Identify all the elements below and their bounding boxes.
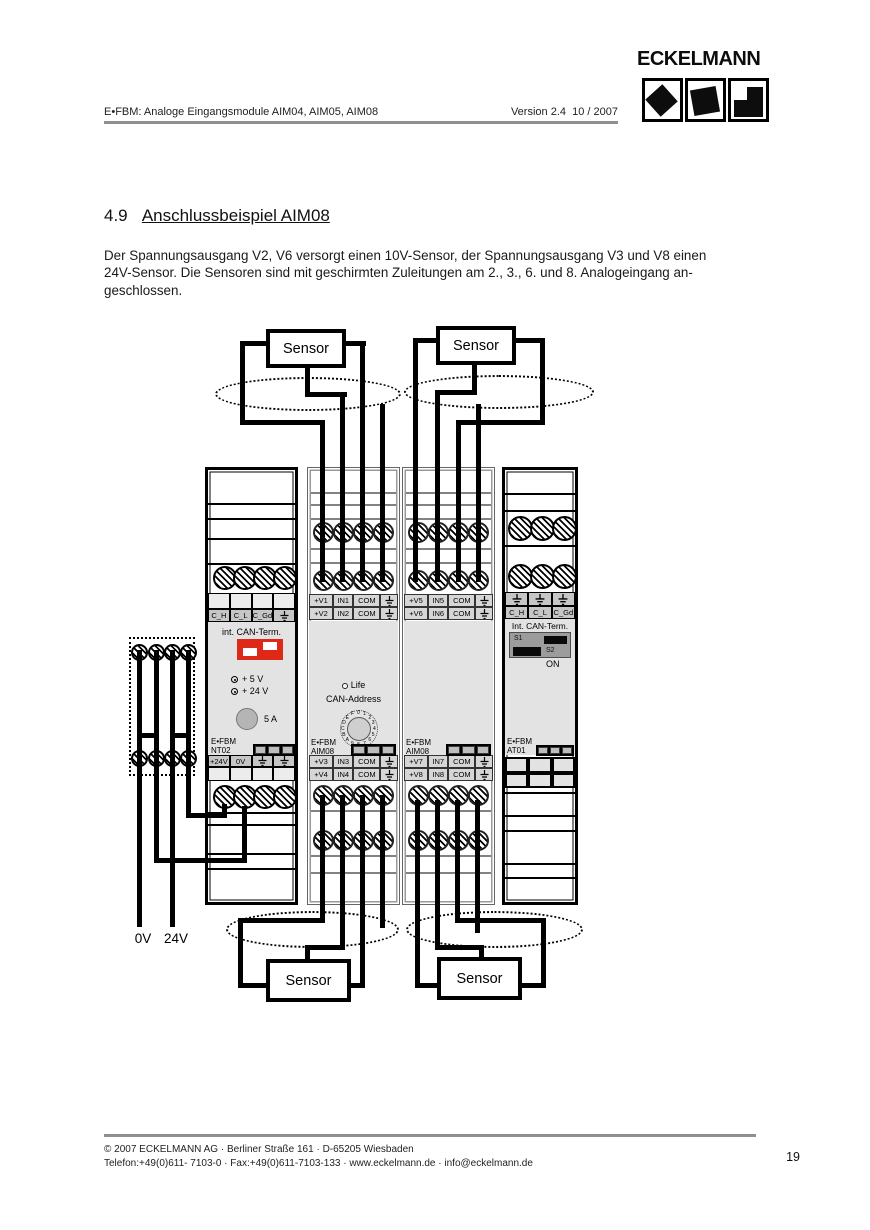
footer-rule (104, 1134, 756, 1137)
divider (208, 824, 295, 826)
brand-label: E•FBM (406, 738, 431, 747)
wire-bridge (170, 733, 191, 738)
terminal-label: COM (448, 768, 475, 781)
s1-label: S1 (514, 635, 523, 642)
fuse-label: 5 A (264, 714, 277, 724)
wire (435, 800, 440, 950)
terminal-grid (505, 757, 575, 788)
dial-digit: B (342, 732, 345, 738)
life-led-icon (342, 683, 348, 689)
divider (505, 830, 575, 832)
earth-icon (280, 611, 289, 621)
earth-icon (385, 596, 394, 606)
screw-terminal (552, 564, 577, 589)
terminal-label-earth (475, 755, 493, 768)
can-address-label: CAN-Address (309, 694, 398, 704)
wire (137, 650, 142, 762)
terminal-label: +V5 (404, 594, 428, 607)
connector-tabs (536, 745, 574, 756)
screw-terminal (552, 516, 577, 541)
wire (240, 420, 325, 425)
wire (154, 650, 159, 762)
terminal-label-row: +V8 IN8 COM (404, 768, 493, 781)
footer-text: © 2007 ECKELMANN AG · Berliner Straße 16… (104, 1143, 724, 1171)
terminal-label: IN7 (428, 755, 448, 768)
wire (456, 420, 461, 582)
terminal-label: +V6 (404, 607, 428, 620)
screw-terminal (273, 785, 297, 809)
terminal-label: IN6 (428, 607, 448, 620)
earth-icon (512, 594, 522, 605)
terminal-label: C_Gd (252, 609, 274, 622)
shield-ellipse-top-right (404, 375, 594, 409)
can-label-row: C_H C_L C_Gd (208, 609, 295, 622)
wire-bridge (137, 733, 159, 738)
terminal-label: +V1 (309, 594, 333, 607)
sensor-box-bottom-right: Sensor (437, 957, 522, 1000)
earth-icon (480, 757, 489, 767)
terminal-label: COM (448, 755, 475, 768)
terminal-label-row: +V5 IN5 COM (404, 594, 493, 607)
terminal-label: IN4 (333, 768, 353, 781)
terminal-label-row: +V6 IN6 COM (404, 607, 493, 620)
earth-icon (258, 756, 267, 766)
dial-digit: C (341, 726, 345, 732)
sensor-box-top-right: Sensor (436, 326, 516, 365)
wire (340, 392, 345, 582)
sensor-box-bottom-left: Sensor (266, 959, 351, 1002)
sensor-box-top-left: Sensor (266, 329, 346, 368)
screw-terminal (408, 522, 429, 543)
supply-24v-label: 24V (158, 931, 194, 946)
dial-digit: A (346, 737, 349, 743)
model-label: NT02 (211, 746, 231, 755)
terminal-label: COM (448, 594, 475, 607)
earth-icon (280, 756, 289, 766)
divider (505, 493, 575, 495)
brand-label: E•FBM (311, 738, 336, 747)
dial-digit: 0 (357, 710, 360, 716)
terminal-label-row: +V7 IN7 COM (404, 755, 493, 768)
earth-icon (480, 770, 489, 780)
wire (238, 918, 325, 923)
dial-digit: 6 (368, 737, 371, 743)
terminal-label-earth (273, 755, 295, 767)
terminal-label: C_Gd (552, 606, 575, 619)
can-term-label: Int. CAN-Term. (505, 622, 575, 631)
terminal-label: +V2 (309, 607, 333, 620)
wire-shield (476, 404, 481, 582)
wire (541, 918, 546, 988)
can-term-switch[interactable]: S1 S2 (509, 632, 571, 658)
wire (186, 762, 191, 818)
terminal-label: +V7 (404, 755, 428, 768)
divider (208, 563, 295, 565)
connector-tabs (446, 744, 491, 756)
wire (520, 983, 546, 988)
can-address-dial[interactable]: 0123456789ABCDEF (340, 710, 378, 748)
wire (240, 341, 245, 425)
brand-label: E•FBM (211, 737, 236, 746)
dial-digit: 5 (372, 732, 375, 738)
led-icon (231, 676, 238, 683)
dial-digit: D (342, 720, 346, 726)
dial-digit: 3 (372, 720, 375, 726)
terminal-label: IN3 (333, 755, 353, 768)
dial-digit: 2 (368, 715, 371, 721)
wire (170, 762, 175, 927)
terminal-label: +24V (208, 755, 230, 767)
wire (435, 390, 477, 395)
wire (186, 813, 227, 818)
wire (360, 341, 365, 582)
terminal-label: IN5 (428, 594, 448, 607)
terminal-label: COM (448, 607, 475, 620)
wire (305, 945, 345, 950)
terminal-label-earth (380, 594, 398, 607)
wire (455, 918, 546, 923)
terminal-label-row: +V2 IN2 COM (309, 607, 398, 620)
terminal-label-earth (528, 592, 551, 606)
model-label: AIM08 (311, 747, 334, 756)
earth-icon (480, 596, 489, 606)
terminal-label: +V8 (404, 768, 428, 781)
terminal-label: +V4 (309, 768, 333, 781)
earth-icon (535, 594, 545, 605)
divider (505, 510, 575, 512)
terminal-cells (208, 767, 295, 781)
terminal-label: IN1 (333, 594, 353, 607)
earth-icon (385, 609, 394, 619)
wire-shield (380, 795, 385, 928)
divider (208, 518, 295, 520)
life-led-label: Life (309, 680, 398, 690)
model-label: AIM08 (406, 747, 429, 756)
terminal-label-earth (505, 592, 528, 606)
wire (413, 338, 418, 582)
s2-label: S2 (546, 647, 555, 654)
footer-line-1: © 2007 ECKELMANN AG · Berliner Straße 16… (104, 1143, 724, 1157)
earth-icon (558, 594, 568, 605)
earth-icon (480, 609, 489, 619)
dial-digit: 4 (373, 726, 376, 732)
terminal-label: C_L (528, 606, 551, 619)
wire (222, 804, 227, 818)
wire (320, 795, 325, 923)
brand-label: E•FBM (507, 737, 532, 746)
terminal-label: C_H (208, 609, 230, 622)
can-term-dip-switch[interactable] (237, 639, 283, 660)
terminal-label-earth (552, 592, 575, 606)
wire (458, 420, 545, 425)
wire (154, 858, 247, 863)
fuse-button[interactable] (236, 708, 258, 730)
divider (505, 877, 575, 879)
terminal-label-earth (475, 768, 493, 781)
terminal-cells (208, 593, 295, 609)
document-page: E•FBM: Analoge Eingangsmodule AIM04, AIM… (0, 0, 870, 1230)
footer-line-2: Telefon:+49(0)611- 7103-0 · Fax:+49(0)61… (104, 1157, 724, 1171)
terminal-label-earth (380, 755, 398, 768)
wire (186, 650, 191, 762)
wire (360, 795, 365, 988)
led-24v: + 24 V (231, 686, 268, 696)
terminal-label-earth (273, 609, 295, 622)
on-label: ON (546, 659, 560, 669)
dial-digit: 1 (363, 711, 366, 717)
screw-terminal (273, 566, 297, 590)
terminal-label-row: +V1 IN1 COM (309, 594, 398, 607)
divider (505, 792, 575, 794)
led-5v: + 5 V (231, 674, 263, 684)
terminal-label: COM (353, 594, 380, 607)
can-label-row: C_H C_L C_Gd (505, 606, 575, 619)
terminal-label-row: +V3 IN3 COM (309, 755, 398, 768)
terminal-label: C_H (505, 606, 528, 619)
terminal-label-earth (380, 768, 398, 781)
divider (505, 863, 575, 865)
dial-digit: E (346, 715, 349, 721)
switch-s2[interactable] (513, 647, 541, 656)
power-label-row: +24V 0V (208, 755, 295, 767)
terminal-label: IN2 (333, 607, 353, 620)
divider (208, 538, 295, 540)
wire (435, 390, 440, 582)
terminal-label-row: +V4 IN4 COM (309, 768, 398, 781)
divider (505, 815, 575, 817)
supply-0v-label: 0V (129, 931, 157, 946)
shield-ellipse-bottom-right (406, 911, 583, 948)
connector-tabs (351, 744, 396, 756)
earth-row (505, 592, 575, 606)
terminal-label: +V3 (309, 755, 333, 768)
terminal-label-earth (380, 607, 398, 620)
terminal-label: IN8 (428, 768, 448, 781)
terminal-label-earth (252, 755, 274, 767)
wire (435, 945, 484, 950)
terminal-label-earth (475, 594, 493, 607)
wire (320, 420, 325, 582)
earth-icon (385, 770, 394, 780)
wiring-diagram: C_H C_L C_Gd int. CAN-Term. + 5 V + 24 V… (0, 0, 870, 1230)
wire (540, 338, 545, 425)
screw-terminal (408, 570, 429, 591)
wire (455, 800, 460, 923)
terminal-label: C_L (230, 609, 252, 622)
wire (170, 650, 175, 762)
terminal-label: COM (353, 755, 380, 768)
earth-icon (385, 757, 394, 767)
divider (208, 503, 295, 505)
page-number: 19 (760, 1150, 800, 1164)
terminal-label: COM (353, 768, 380, 781)
can-term-label: int. CAN-Term. (208, 627, 295, 637)
model-label: AT01 (507, 746, 526, 755)
aim08-2-front-panel (404, 621, 493, 755)
wire (137, 762, 142, 927)
terminal-label: COM (353, 607, 380, 620)
wire-shield (380, 404, 385, 582)
wire (415, 800, 420, 988)
terminal-label: 0V (230, 755, 252, 767)
wire (242, 806, 247, 863)
wire (154, 762, 159, 863)
dial-digit: F (351, 711, 354, 717)
led-icon (231, 688, 238, 695)
connector-tabs (253, 744, 295, 756)
divider (505, 545, 575, 547)
shield-ellipse-bottom-left (226, 911, 399, 948)
wire-shield (475, 800, 480, 933)
divider (208, 853, 295, 855)
terminal-label-earth (475, 607, 493, 620)
wire (238, 918, 243, 988)
switch-s1[interactable] (544, 636, 567, 644)
wire (340, 795, 345, 950)
divider (208, 868, 295, 870)
